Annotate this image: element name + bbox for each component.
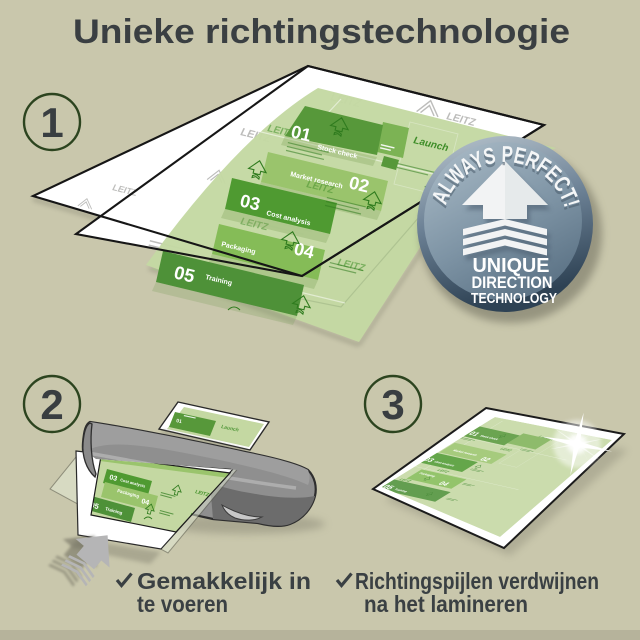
svg-text:TECHNOLOGY: TECHNOLOGY	[471, 291, 557, 307]
svg-text:DIRECTION: DIRECTION	[472, 273, 553, 292]
svg-text:3: 3	[381, 381, 404, 428]
svg-text:1: 1	[40, 99, 63, 146]
svg-text:na het lamineren: na het lamineren	[364, 591, 528, 617]
svg-text:te voeren: te voeren	[137, 591, 228, 617]
svg-text:Unieke richtingstechnologie: Unieke richtingstechnologie	[73, 13, 570, 51]
svg-text:2: 2	[40, 381, 63, 428]
